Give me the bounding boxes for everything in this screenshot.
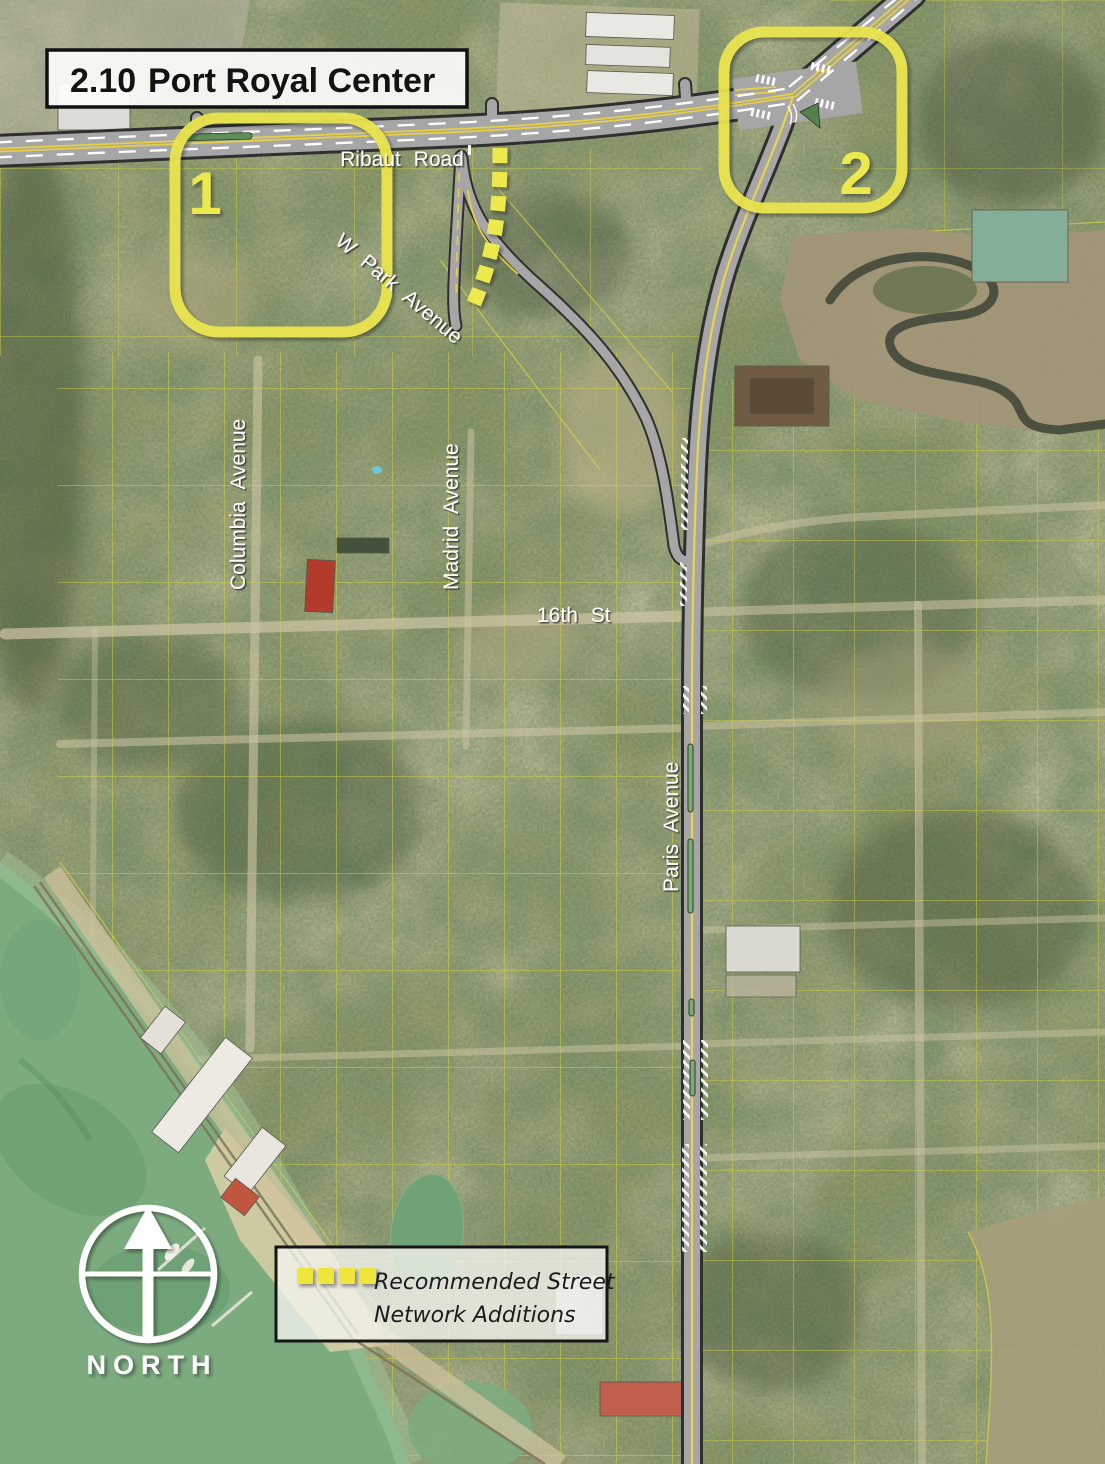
callout-2-number: 2: [839, 140, 872, 207]
title-number: 2.10: [70, 62, 136, 100]
callout-1-number: 1: [188, 160, 221, 227]
label-paris-avenue: Paris Avenue: [660, 762, 683, 892]
title-box: 2.10 Port Royal Center: [47, 50, 467, 107]
north-arrow-icon: [82, 1206, 214, 1340]
legend-label-line2: Network Additions: [374, 1303, 576, 1328]
legend-box: Recommended Street Network Additions: [276, 1247, 616, 1341]
map-page: 1 2 Ribaut Road W Park Avenue Columbia A…: [0, 0, 1105, 1464]
north-label: NORTH: [87, 1350, 218, 1380]
page-title: Port Royal Center: [148, 62, 435, 100]
label-16th-st: 16th St: [537, 604, 611, 627]
label-madrid-avenue: Madrid Avenue: [440, 443, 463, 590]
legend-label-line1: Recommended Street: [374, 1270, 616, 1295]
label-columbia-avenue: Columbia Avenue: [227, 419, 250, 590]
aerial-map-canvas: 1 2 Ribaut Road W Park Avenue Columbia A…: [0, 0, 1105, 1464]
label-ribaut-road: Ribaut Road: [340, 148, 464, 171]
